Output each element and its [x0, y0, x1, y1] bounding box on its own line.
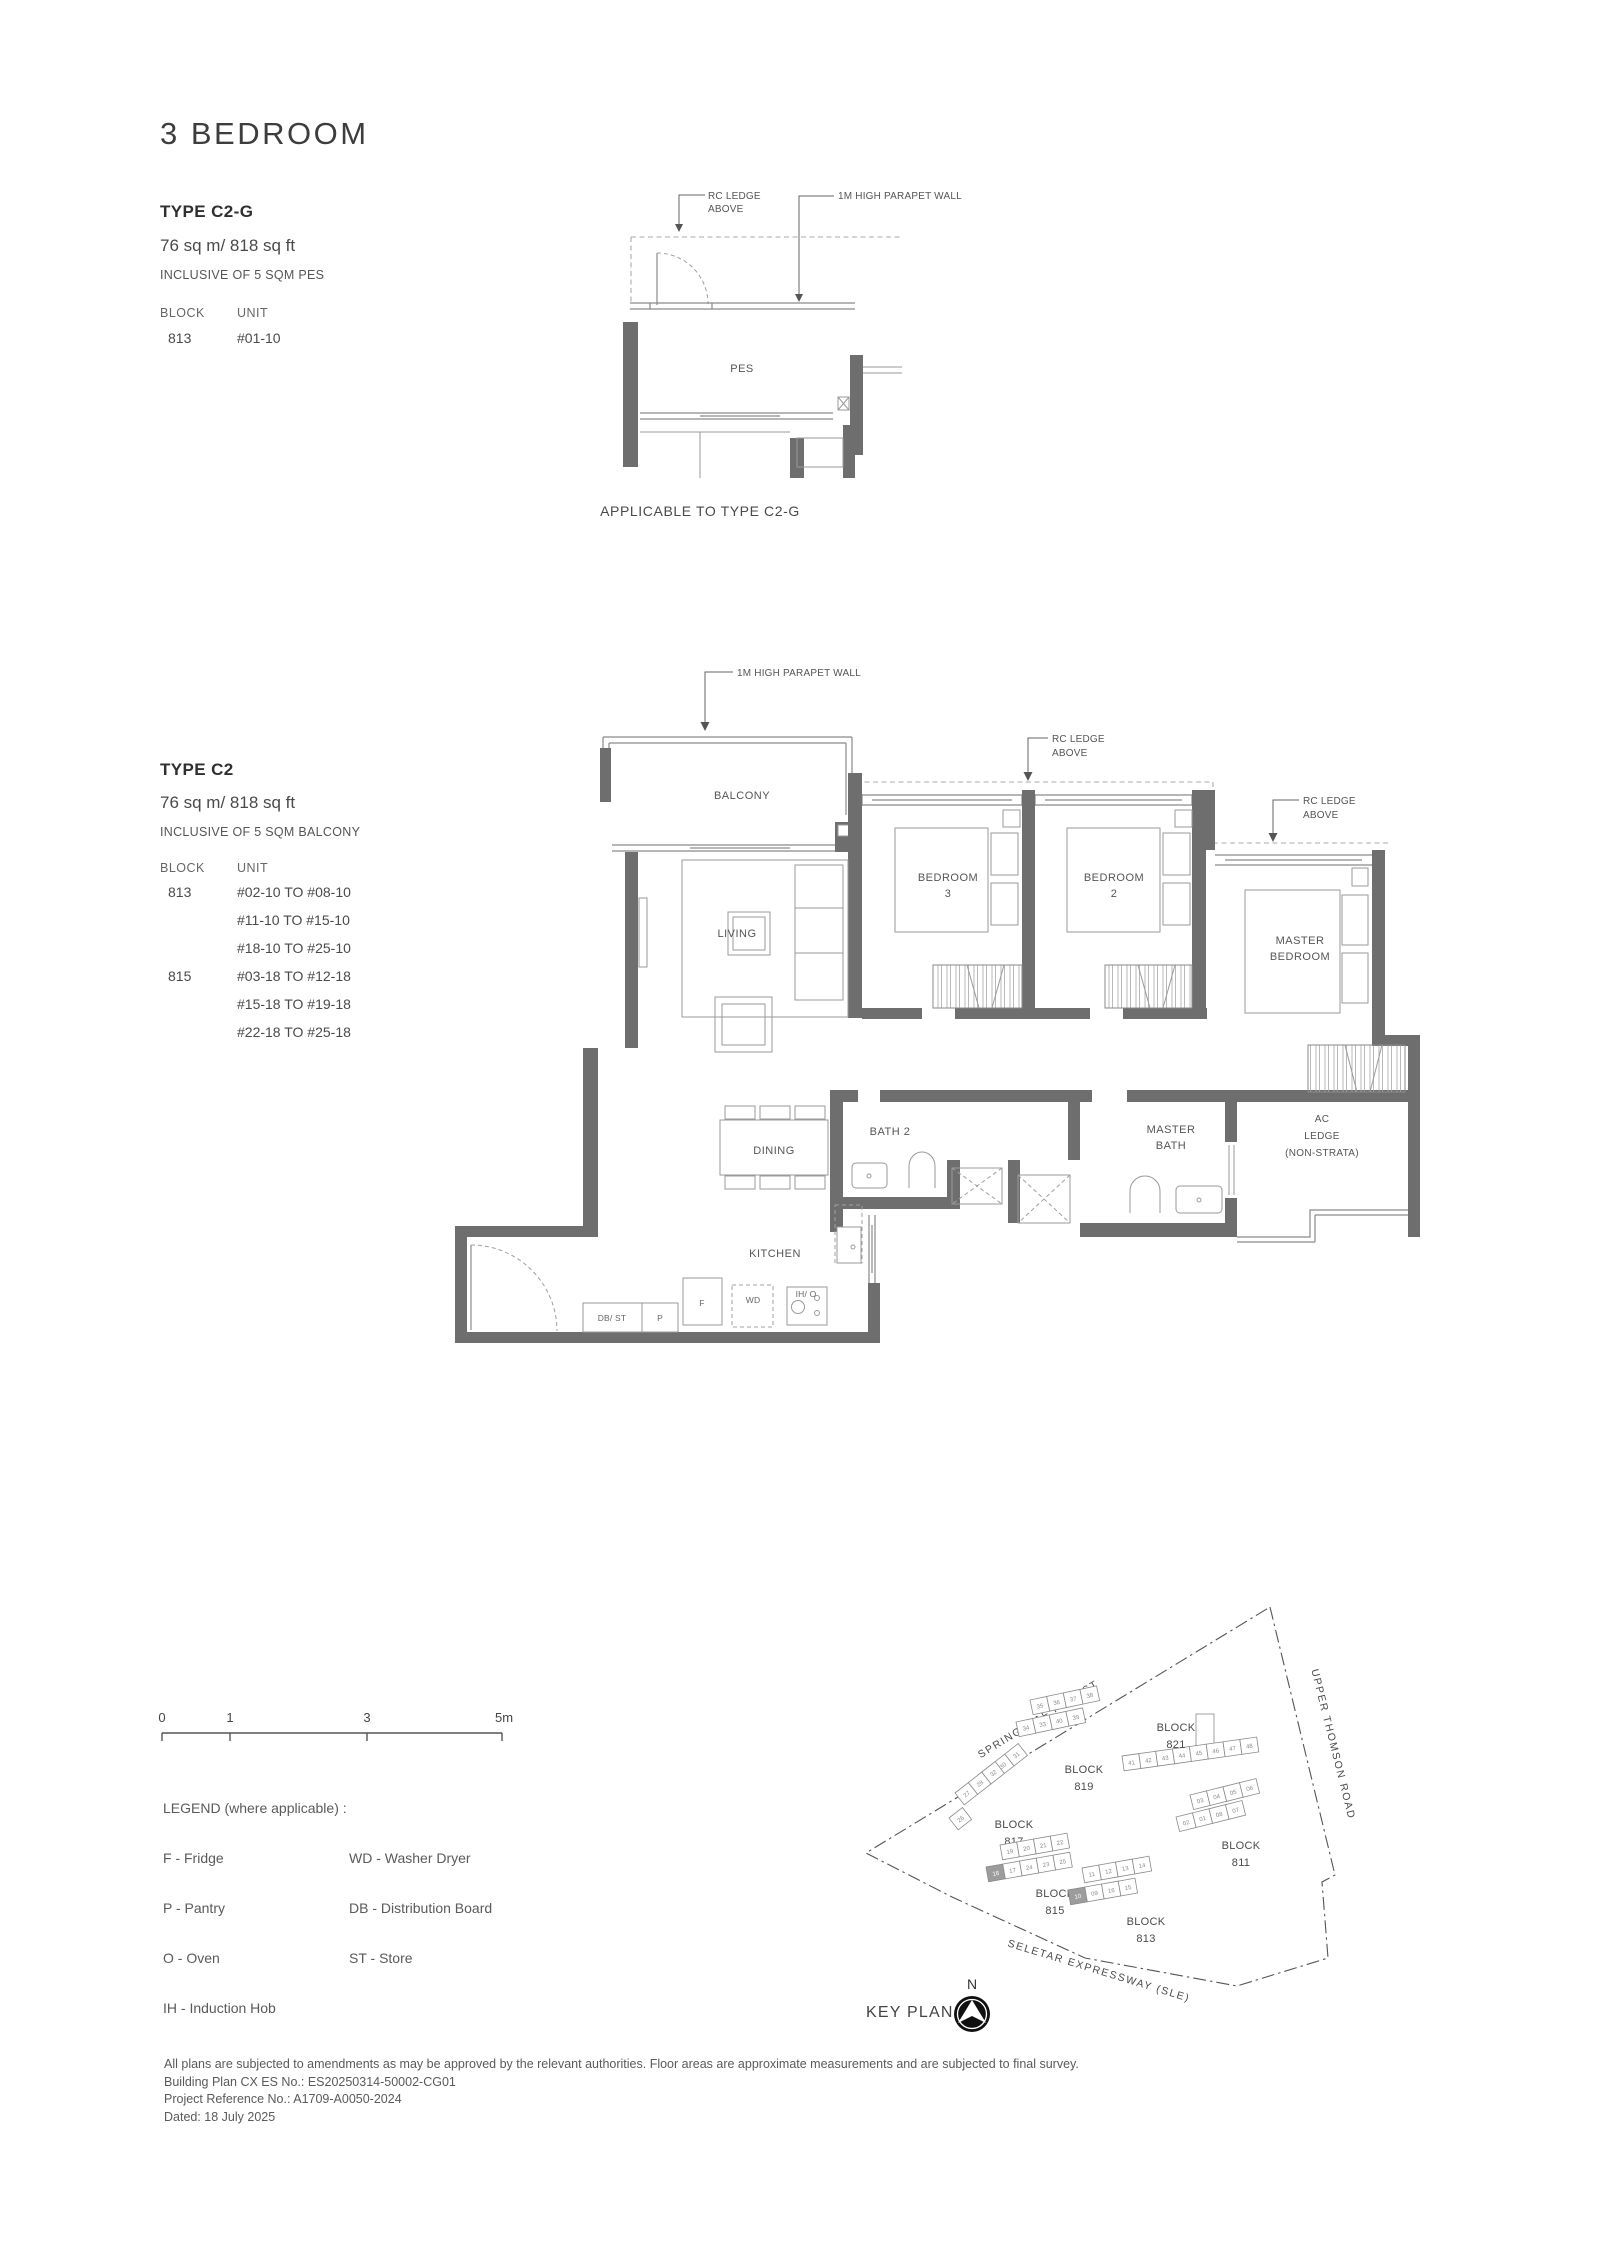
rc-ledge-label: ABOVE [1052, 748, 1088, 759]
bedroom2-furniture [1067, 810, 1192, 1008]
rc-ledge-label: RC LEDGE [1052, 734, 1105, 745]
master-bath-label: MASTER [1147, 1124, 1196, 1136]
unit-range: #22-18 TO #25-18 [237, 1024, 351, 1040]
legend-row: F - Fridge WD - Washer Dryer [163, 1850, 492, 1866]
legend-row: O - Oven ST - Store [163, 1950, 492, 1966]
master-bath-fixtures [1130, 1176, 1222, 1213]
legend-title: LEGEND (where applicable) : [163, 1800, 492, 1816]
entry-door-swing-arc [471, 1245, 557, 1331]
living-label: LIVING [717, 928, 756, 940]
legend-item: P - Pantry [163, 1900, 349, 1916]
legend: LEGEND (where applicable) : F - Fridge W… [163, 1800, 492, 2016]
scale-bar: 0 1 3 5m [150, 1695, 530, 1745]
keyplan-block-label: BLOCK [1157, 1722, 1196, 1734]
unit-row: #18-10 TO #25-10 [160, 940, 360, 968]
legend-row: P - Pantry DB - Distribution Board [163, 1900, 492, 1916]
keyplan-block-label: BLOCK [1127, 1916, 1166, 1928]
bedroom3-label: BEDROOM [918, 872, 978, 884]
unit-range: #03-18 TO #12-18 [237, 968, 351, 984]
unit-row: 815 #03-18 TO #12-18 [160, 968, 360, 996]
rc-ledge-label: RC LEDGE [708, 191, 761, 202]
ac-ledge-label: AC [1315, 1114, 1330, 1125]
dbst-label: DB/ ST [598, 1313, 627, 1323]
keyplan-cluster-row: 4142434445464748 [1122, 1737, 1259, 1771]
keyplan-cluster-row: 35363738 [1030, 1686, 1100, 1715]
main-floor-plan-svg: 1M HIGH PARAPET WALL RC LEDGE ABOVE RC L… [440, 650, 1440, 1360]
wall [600, 748, 611, 802]
bath2-label: BATH 2 [870, 1126, 911, 1138]
road-label-seletar: SELETAR EXPRESSWAY (SLE) [1006, 1938, 1192, 2005]
balcony-label: BALCONY [714, 790, 770, 802]
fridge-label: F [699, 1298, 704, 1308]
parapet-wall-label: 1M HIGH PARAPET WALL [838, 191, 962, 202]
type-c2g-block-unit-row: 813 #01-10 [160, 330, 324, 358]
balcony-fixture [838, 825, 849, 836]
small-plan-c2g-svg: RC LEDGE ABOVE 1M HIGH PARAPET WALL PES [600, 180, 960, 480]
leader-line [1028, 738, 1048, 776]
footer-notes: All plans are subjected to amendments as… [164, 2056, 1484, 2126]
bedroom2-label: BEDROOM [1084, 872, 1144, 884]
footer-line: Project Reference No.: A1709-A0050-2024 [164, 2091, 1484, 2109]
leader-arrow [1024, 772, 1033, 781]
leader-arrow [675, 224, 683, 232]
unit-row: #22-18 TO #25-18 [160, 1024, 360, 1052]
wall-lines [640, 432, 790, 478]
site-boundary [866, 1607, 1335, 1986]
leader-line [705, 672, 733, 726]
master-bath-label: BATH [1156, 1140, 1187, 1152]
keyplan-cluster-row: 10091615 [1068, 1878, 1138, 1905]
block-value: 813 [160, 884, 237, 900]
type-c2g-area: 76 sq m/ 818 sq ft [160, 236, 324, 256]
legend-item: O - Oven [163, 1950, 349, 1966]
legend-item: IH - Induction Hob [163, 2000, 349, 2016]
keyplan-title: KEY PLAN [866, 2004, 954, 2021]
type-c2-area: 76 sq m/ 818 sq ft [160, 793, 360, 813]
keyplan-block-label: 819 [1074, 1781, 1093, 1793]
keyplan-cluster-row: 272832 [955, 1762, 1004, 1805]
legend-item: F - Fridge [163, 1850, 349, 1866]
master-window-band [1215, 855, 1372, 865]
block-header: BLOCK [160, 861, 237, 875]
keyplan-block-label: 811 [1232, 1857, 1250, 1869]
dining-label: DINING [753, 1145, 795, 1157]
unit-row: 813 #02-10 TO #08-10 [160, 884, 360, 912]
rc-ledge-dashed-line [631, 237, 902, 303]
leader-line [1273, 800, 1299, 837]
scale-tick: 0 [158, 1710, 165, 1725]
rc-ledge-label: RC LEDGE [1303, 796, 1356, 807]
legend-row: IH - Induction Hob [163, 2000, 492, 2016]
unit-row: #11-10 TO #15-10 [160, 912, 360, 940]
block-value: 813 [160, 330, 237, 346]
unit-range: #18-10 TO #25-10 [237, 940, 351, 956]
type-c2g-name: TYPE C2-G [160, 202, 324, 222]
floorplan-brochure-page: 3 BEDROOM TYPE C2-G 76 sq m/ 818 sq ft I… [0, 0, 1600, 2258]
small-plan-caption: APPLICABLE TO TYPE C2-G [600, 503, 800, 519]
parapet-wall-label: 1M HIGH PARAPET WALL [737, 668, 861, 679]
keyplan-block-label: BLOCK [1222, 1840, 1261, 1852]
type-c2-info: TYPE C2 76 sq m/ 818 sq ft INCLUSIVE OF … [160, 760, 360, 1052]
leader-arrow [701, 722, 710, 731]
type-c2g-inclusive: INCLUSIVE OF 5 SQM PES [160, 268, 324, 282]
unit-header: UNIT [237, 306, 268, 320]
keyplan-block-label: 813 [1136, 1933, 1155, 1945]
type-c2-name: TYPE C2 [160, 760, 360, 780]
kitchen-window-band [869, 1215, 875, 1283]
unit-range: #11-10 TO #15-10 [237, 912, 350, 928]
rc-ledge-label: ABOVE [1303, 810, 1339, 821]
pes-room-label: PES [730, 363, 754, 375]
legend-item: WD - Washer Dryer [349, 1850, 471, 1866]
unit-header: UNIT [237, 861, 268, 875]
scale-bar-line [162, 1733, 502, 1741]
master-bedroom-label: MASTER [1276, 935, 1325, 947]
leader-arrow [1269, 833, 1278, 842]
living-furniture [639, 860, 848, 1052]
keyplan-block-label: BLOCK [995, 1819, 1034, 1831]
unit-row: #15-18 TO #19-18 [160, 996, 360, 1024]
north-label: N [967, 1976, 977, 1992]
balcony-parapet [603, 737, 852, 822]
rc-ledge-label: ABOVE [708, 204, 744, 215]
leader-line [799, 196, 834, 297]
ac-ledge-boundary [1237, 1210, 1408, 1242]
page-title: 3 BEDROOM [160, 116, 369, 152]
type-c2-unit-list: 813 #02-10 TO #08-10 #11-10 TO #15-10 #1… [160, 884, 360, 1052]
unit-range: #02-10 TO #08-10 [237, 884, 351, 900]
window-band [640, 413, 833, 419]
keyplan-block-label: 815 [1045, 1905, 1064, 1917]
wall [623, 322, 638, 467]
type-c2-inclusive: INCLUSIVE OF 5 SQM BALCONY [160, 825, 360, 839]
keyplan-svg: SPRINGLEAF FOREST UPPER THOMSON ROAD SEL… [820, 1595, 1420, 2045]
scale-tick: 5m [495, 1710, 513, 1725]
compass-icon [954, 1996, 990, 2032]
keyplan-block-label: 821 [1166, 1739, 1185, 1751]
footer-line: All plans are subjected to amendments as… [164, 2056, 1484, 2074]
legend-item: DB - Distribution Board [349, 1900, 492, 1916]
washer-dryer-label: WD [746, 1295, 761, 1305]
door-swing-arc [657, 253, 708, 304]
keyplan-cluster-row: 1817242325 [986, 1852, 1072, 1882]
type-c2g-info: TYPE C2-G 76 sq m/ 818 sq ft INCLUSIVE O… [160, 202, 324, 358]
scale-tick: 1 [226, 1710, 233, 1725]
keyplan-cluster-row: 11121314 [1082, 1856, 1152, 1883]
bath2-fixtures [852, 1152, 935, 1188]
type-c2-block-unit-header: BLOCK UNIT [160, 861, 360, 875]
wall [843, 425, 855, 478]
block-value: 815 [160, 968, 237, 984]
legend-item: ST - Store [349, 1950, 413, 1966]
kitchen-label: KITCHEN [749, 1248, 801, 1260]
bedroom2-label: 2 [1111, 888, 1118, 900]
footer-line: Building Plan CX ES No.: ES20250314-5000… [164, 2074, 1484, 2092]
leader-arrow [795, 294, 803, 302]
induction-hob-oven-label: IH/ O [796, 1289, 817, 1299]
balcony-sliding-door [612, 845, 835, 851]
bath-window [1229, 1145, 1234, 1195]
master-bedroom-label: BEDROOM [1270, 951, 1330, 963]
scale-tick: 3 [363, 1710, 370, 1725]
block-header: BLOCK [160, 306, 237, 320]
keyplan-cluster-row: 26 [949, 1808, 972, 1830]
ac-ledge-label: LEDGE [1304, 1131, 1339, 1142]
unit-range: #15-18 TO #19-18 [237, 996, 351, 1012]
leader-line [679, 195, 705, 227]
type-c2g-block-unit-header: BLOCK UNIT [160, 306, 324, 320]
unit-value: #01-10 [237, 330, 281, 346]
keyplan-block-label: BLOCK [1065, 1764, 1104, 1776]
gate-lines [863, 367, 902, 373]
footer-line: Dated: 18 July 2025 [164, 2109, 1484, 2127]
bedroom3-furniture [895, 810, 1022, 1008]
ac-ledge-label: (NON-STRATA) [1285, 1148, 1359, 1159]
bedroom3-label: 3 [945, 888, 952, 900]
parapet-wall [630, 303, 855, 309]
pantry-label: P [657, 1313, 663, 1323]
